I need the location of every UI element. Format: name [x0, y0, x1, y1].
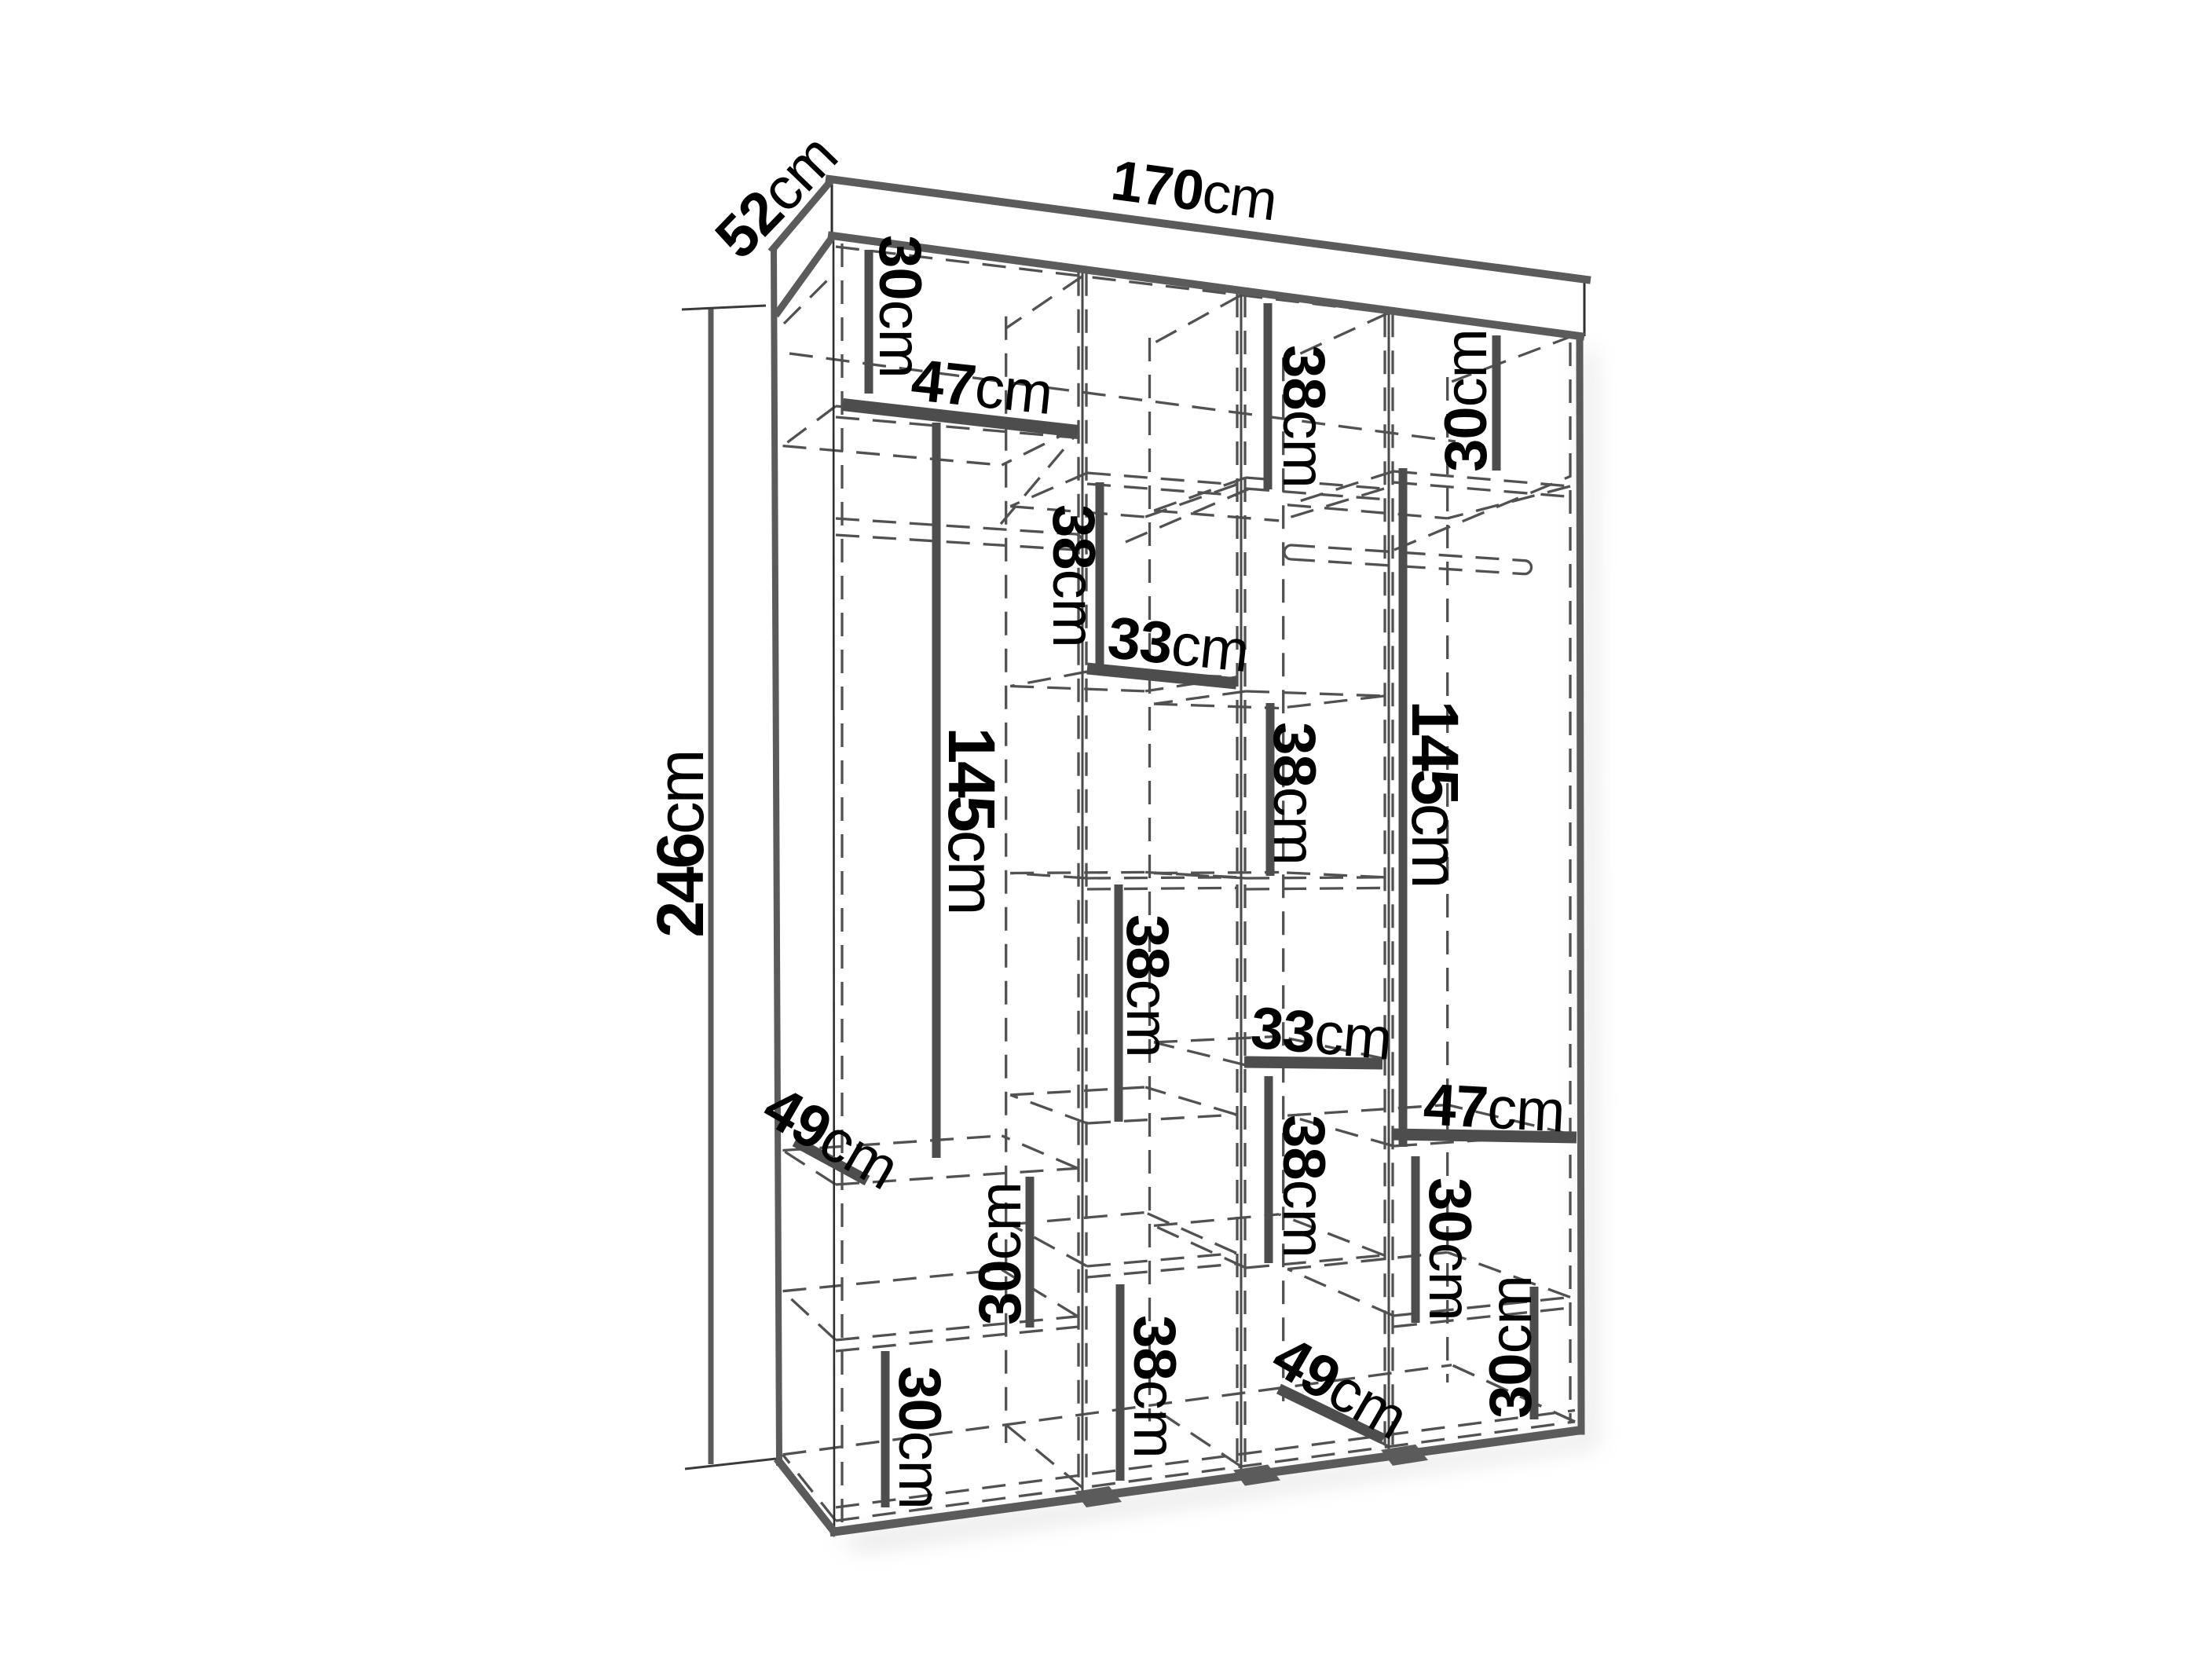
svg-text:33cm: 33cm — [1248, 994, 1394, 1071]
svg-text:145cm: 145cm — [935, 727, 1009, 913]
svg-text:30cm: 30cm — [1478, 1276, 1544, 1419]
svg-text:38cm: 38cm — [1115, 914, 1181, 1057]
svg-text:30cm: 30cm — [887, 1366, 954, 1509]
svg-text:38cm: 38cm — [1122, 1315, 1188, 1458]
svg-text:38cm: 38cm — [1041, 504, 1108, 647]
svg-text:30cm: 30cm — [967, 1182, 1034, 1325]
svg-text:47cm: 47cm — [1422, 1071, 1566, 1144]
svg-text:145cm: 145cm — [1398, 700, 1472, 886]
svg-text:30cm: 30cm — [1417, 1177, 1484, 1320]
svg-text:38cm: 38cm — [1271, 1115, 1338, 1258]
svg-text:38cm: 38cm — [1262, 722, 1328, 865]
svg-text:30cm: 30cm — [1433, 329, 1500, 472]
svg-text:246cm: 246cm — [643, 751, 717, 937]
svg-text:38cm: 38cm — [1271, 345, 1338, 488]
